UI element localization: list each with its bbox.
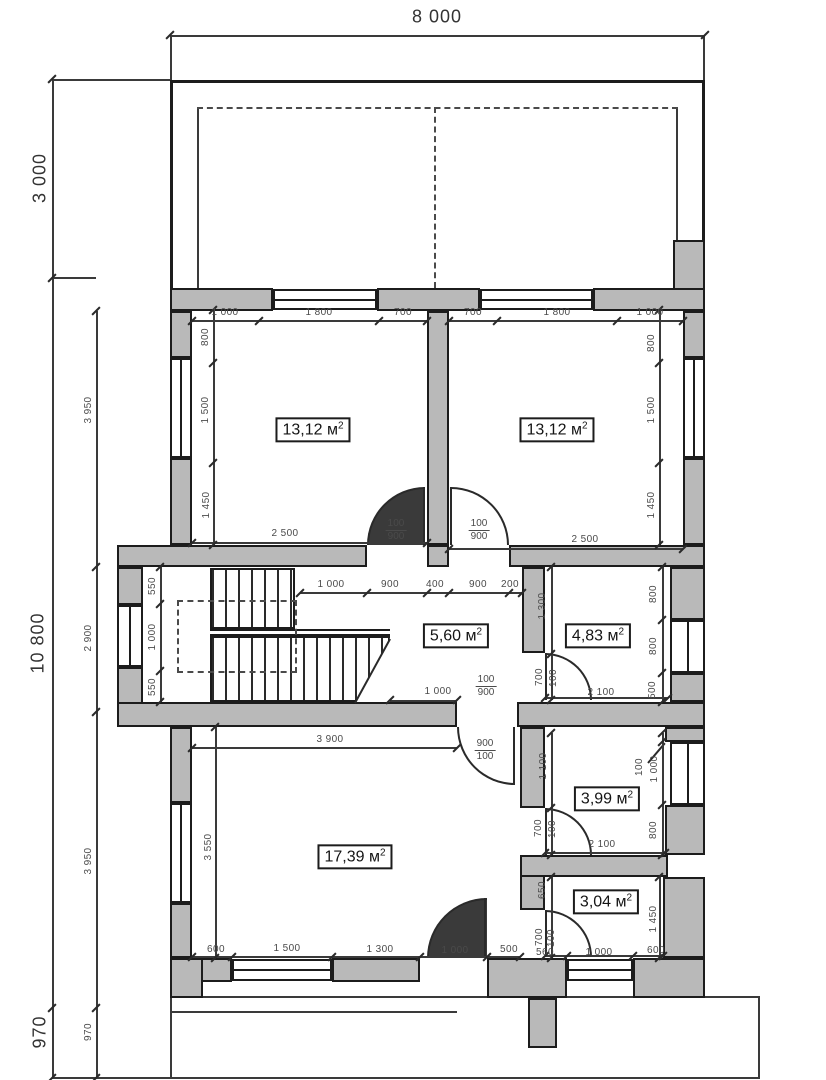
dimension-line	[703, 36, 705, 80]
wall	[427, 311, 449, 545]
dimension-line	[449, 548, 683, 550]
dimension-line	[52, 79, 54, 1078]
dimension-line	[300, 592, 522, 594]
dimension-label: 1 300	[538, 592, 548, 619]
room-area-label: 4,83 м2	[565, 623, 631, 648]
porch-step-line	[170, 1011, 457, 1013]
dimension-label: 900	[381, 580, 399, 590]
terrace-inner-dashed-top	[197, 107, 678, 109]
dimension-label: 600	[207, 945, 225, 955]
dimension-label: 3 900	[316, 735, 343, 745]
wall	[520, 855, 668, 877]
room-area-label: 13,12 м2	[519, 417, 594, 442]
dimension-tick	[452, 695, 461, 704]
dimension-label: 100	[547, 929, 557, 947]
dimension-label: 1 000	[424, 687, 451, 697]
wall	[528, 998, 557, 1048]
terrace-center-dashed-line	[434, 107, 436, 288]
window	[670, 620, 705, 673]
dimension-label: 800	[201, 328, 211, 346]
dimension-label: 970	[30, 1015, 51, 1048]
wall	[170, 958, 203, 998]
dimension-label: 100	[549, 669, 559, 687]
dimension-label: 1 100	[539, 752, 549, 779]
wall	[117, 545, 367, 567]
stairs-opening-dashed	[177, 600, 297, 673]
dimension-label: 2 500	[571, 535, 598, 545]
dimension-label: 1 800	[305, 308, 332, 318]
dimension-label: 500	[648, 681, 658, 699]
window	[170, 803, 192, 903]
window	[232, 959, 332, 981]
dimension-label: 8 000	[412, 7, 462, 28]
wall	[670, 673, 705, 702]
dimension-label: 2 100	[587, 688, 614, 698]
room-area-label: 13,12 м2	[275, 417, 350, 442]
dimension-label: 1 000	[317, 580, 344, 590]
dimension-line	[170, 35, 705, 37]
dimension-label: 550	[148, 678, 158, 696]
window	[117, 605, 143, 667]
dimension-label: 550	[148, 577, 158, 595]
dimension-label: 1 000	[585, 948, 612, 958]
dimension-label: 1 450	[649, 905, 659, 932]
door-dimension-fraction: 100900	[476, 674, 497, 698]
dimension-label: 650	[538, 881, 548, 899]
door-dimension-fraction: 100900	[469, 518, 490, 542]
dimension-line	[192, 542, 427, 544]
dimension-label: 400	[426, 580, 444, 590]
dimension-label: 3 550	[204, 833, 214, 860]
dimension-label: 2 900	[84, 624, 94, 651]
dimension-label: 1 000	[211, 308, 238, 318]
dimension-label: 1 450	[647, 491, 657, 518]
dimension-label: 800	[649, 637, 659, 655]
wall	[170, 903, 192, 958]
dimension-line	[170, 36, 172, 80]
door-leaf	[513, 727, 515, 785]
dimension-label: 1 300	[366, 945, 393, 955]
window	[683, 358, 705, 458]
dimension-label: 800	[647, 334, 657, 352]
dimension-label: 970	[84, 1023, 94, 1041]
dimension-line	[449, 320, 683, 322]
dimension-line	[52, 1077, 170, 1079]
door-leaf	[450, 487, 452, 545]
dimension-line	[213, 310, 215, 545]
floor-plan: 8 0003 00010 8009701 0001 8007007001 800…	[0, 0, 826, 1080]
dimension-line	[659, 310, 661, 545]
room-area-label: 17,39 м2	[317, 844, 392, 869]
dimension-label: 3 950	[84, 847, 94, 874]
porch-right-line	[758, 997, 760, 1078]
dimension-tick	[700, 30, 709, 39]
dimension-label: 700	[535, 928, 545, 946]
dimension-line	[662, 733, 664, 855]
dimension-label: 700	[394, 308, 412, 318]
dimension-label: 3 950	[84, 396, 94, 423]
dimension-label: 700	[534, 819, 544, 837]
door-dimension-fraction: 100900	[386, 518, 407, 542]
wall	[663, 877, 705, 958]
dimension-label: 900	[469, 580, 487, 590]
dimension-label: 500	[500, 945, 518, 955]
wall	[332, 958, 420, 982]
window	[480, 289, 593, 310]
wall	[170, 458, 192, 545]
dimension-label: 1 450	[202, 491, 212, 518]
porch-bottom-line	[170, 1077, 760, 1079]
dimension-line	[545, 852, 665, 854]
dimension-label: 800	[649, 585, 659, 603]
window	[567, 959, 633, 981]
wall	[170, 727, 192, 803]
dimension-label: 100	[548, 820, 558, 838]
wall	[670, 567, 705, 620]
dimension-label: 800	[649, 821, 659, 839]
porch-left-line	[170, 997, 172, 1078]
dimension-line	[192, 747, 457, 749]
wall	[170, 311, 192, 358]
wall	[665, 727, 705, 742]
dimension-label: 700	[535, 668, 545, 686]
dimension-label: 700	[464, 308, 482, 318]
terrace-outline	[170, 80, 705, 288]
wall	[517, 702, 705, 727]
dimension-line	[390, 700, 457, 702]
dimension-label: 560	[536, 948, 554, 958]
dimension-label: 10 800	[28, 612, 49, 673]
dimension-line	[192, 956, 520, 958]
dimension-label: 2 500	[271, 529, 298, 539]
room-area-label: 5,60 м2	[423, 623, 489, 648]
dimension-line	[192, 320, 427, 322]
room-area-label: 3,04 м2	[573, 889, 639, 914]
dimension-label: 2 100	[588, 840, 615, 850]
wall	[683, 458, 705, 545]
dimension-line	[215, 727, 217, 958]
door-dimension-fraction: 900100	[475, 738, 496, 762]
wall	[633, 958, 705, 998]
door-leaf	[484, 898, 486, 958]
window	[670, 742, 705, 805]
dimension-label: 1 000	[650, 755, 660, 782]
dimension-label: 1 000	[441, 946, 468, 956]
dimension-label: 1 000	[148, 623, 158, 650]
wall	[117, 567, 143, 605]
wall	[487, 958, 567, 998]
dimension-label: 1 500	[201, 396, 211, 423]
wall	[665, 805, 705, 855]
dimension-label: 100	[635, 758, 645, 776]
wall	[673, 240, 705, 290]
wall	[117, 702, 457, 727]
dimension-line	[160, 567, 162, 702]
wall	[427, 545, 449, 567]
room-area-label: 3,99 м2	[574, 786, 640, 811]
terrace-inner-left-line	[197, 107, 199, 288]
dimension-line	[662, 567, 664, 702]
dimension-label: 1 000	[636, 308, 663, 318]
dimension-label: 1 500	[273, 944, 300, 954]
dimension-label: 1 500	[647, 396, 657, 423]
dimension-label: 3 000	[30, 153, 51, 203]
door-leaf	[423, 487, 425, 545]
window	[170, 358, 192, 458]
dimension-label: 1 800	[543, 308, 570, 318]
dimension-line	[52, 277, 96, 279]
dimension-label: 600	[647, 946, 665, 956]
dimension-label: 200	[501, 580, 519, 590]
dimension-line	[52, 79, 170, 81]
dimension-line	[96, 311, 98, 1078]
